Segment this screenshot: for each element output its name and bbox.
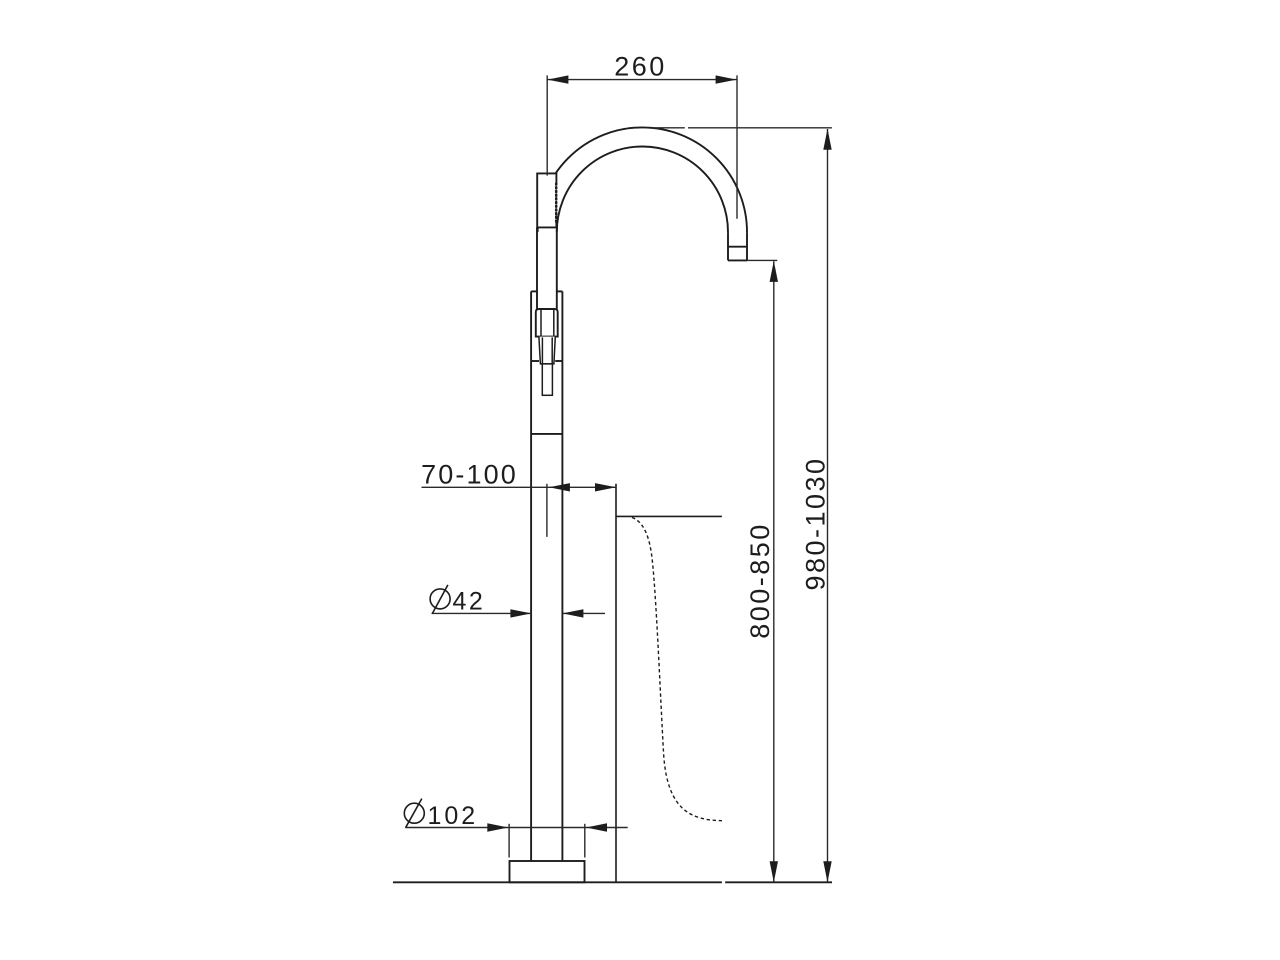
svg-text:260: 260 <box>614 51 667 81</box>
svg-text:70-100: 70-100 <box>421 460 518 490</box>
svg-text:980-1030: 980-1030 <box>801 456 831 590</box>
svg-text:42: 42 <box>453 588 486 616</box>
svg-text:102: 102 <box>428 802 479 830</box>
svg-text:800-850: 800-850 <box>745 522 775 639</box>
